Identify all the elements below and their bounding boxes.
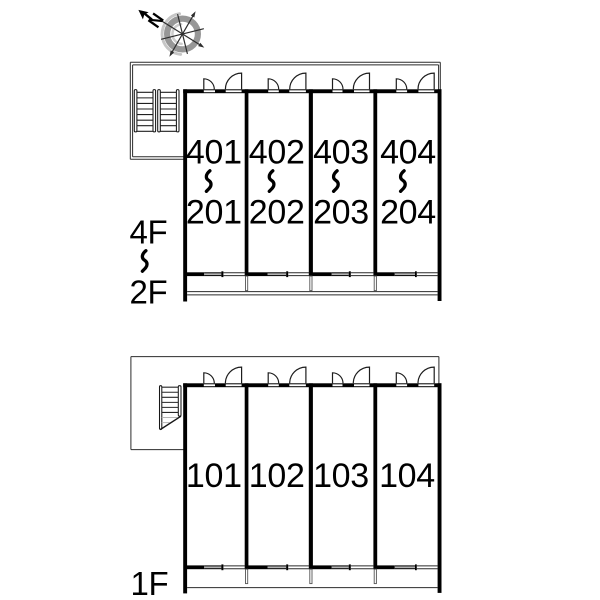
svg-text:204: 204 [380,193,436,231]
svg-text:202: 202 [249,193,305,231]
svg-text:104: 104 [379,457,435,495]
svg-text:101: 101 [186,457,242,495]
svg-text:1F: 1F [131,565,169,600]
svg-text:201: 201 [186,193,242,231]
svg-text:102: 102 [249,457,305,495]
svg-text:4F: 4F [130,213,168,250]
svg-text:403: 403 [313,133,369,171]
svg-text:203: 203 [313,193,369,231]
svg-text:401: 401 [186,133,242,171]
svg-text:402: 402 [249,133,305,171]
svg-text:404: 404 [380,133,436,171]
svg-text:2F: 2F [130,273,168,310]
svg-text:103: 103 [313,457,369,495]
